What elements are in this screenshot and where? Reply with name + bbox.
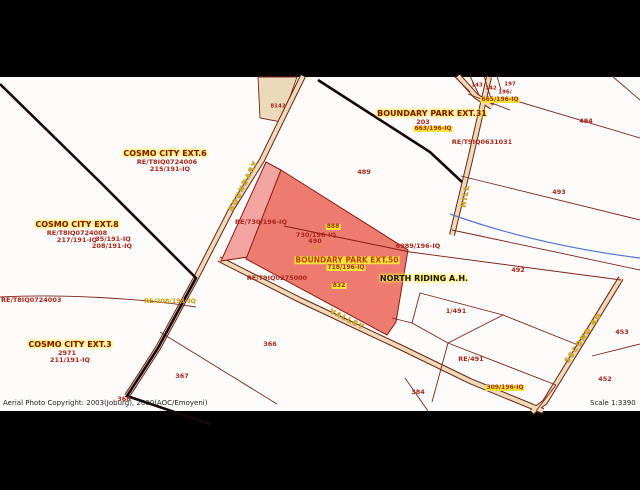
municipal-boundary-northeast [318,80,462,182]
scale-text: Scale 1:3390 [590,400,636,407]
boundary-453-452 [592,344,640,356]
municipal-boundary-west [0,84,210,424]
boundary-494-north [503,97,640,138]
boundary-309-east [536,385,556,411]
boundary-re491-west [432,343,448,402]
copyright-text: Aerial Photo Copyright: 2003(Joburg), 20… [3,400,207,407]
boundary-erf-1-491 [412,293,503,343]
boundary-493-492 [452,230,640,270]
boundary-ext8-ext3 [0,296,196,307]
boundary-367-366 [160,332,277,404]
map-viewport: COSMO CITY EXT.6RE/T8IQ0724006215/191-IQ… [0,0,640,490]
boundary-topright-corner [612,76,640,100]
parcel-layer [0,0,640,490]
boundary-re491-north [503,315,578,345]
boundary-494-493 [461,176,640,220]
boundary-366-south [405,378,428,411]
boundary-492-north-riding [410,252,621,280]
